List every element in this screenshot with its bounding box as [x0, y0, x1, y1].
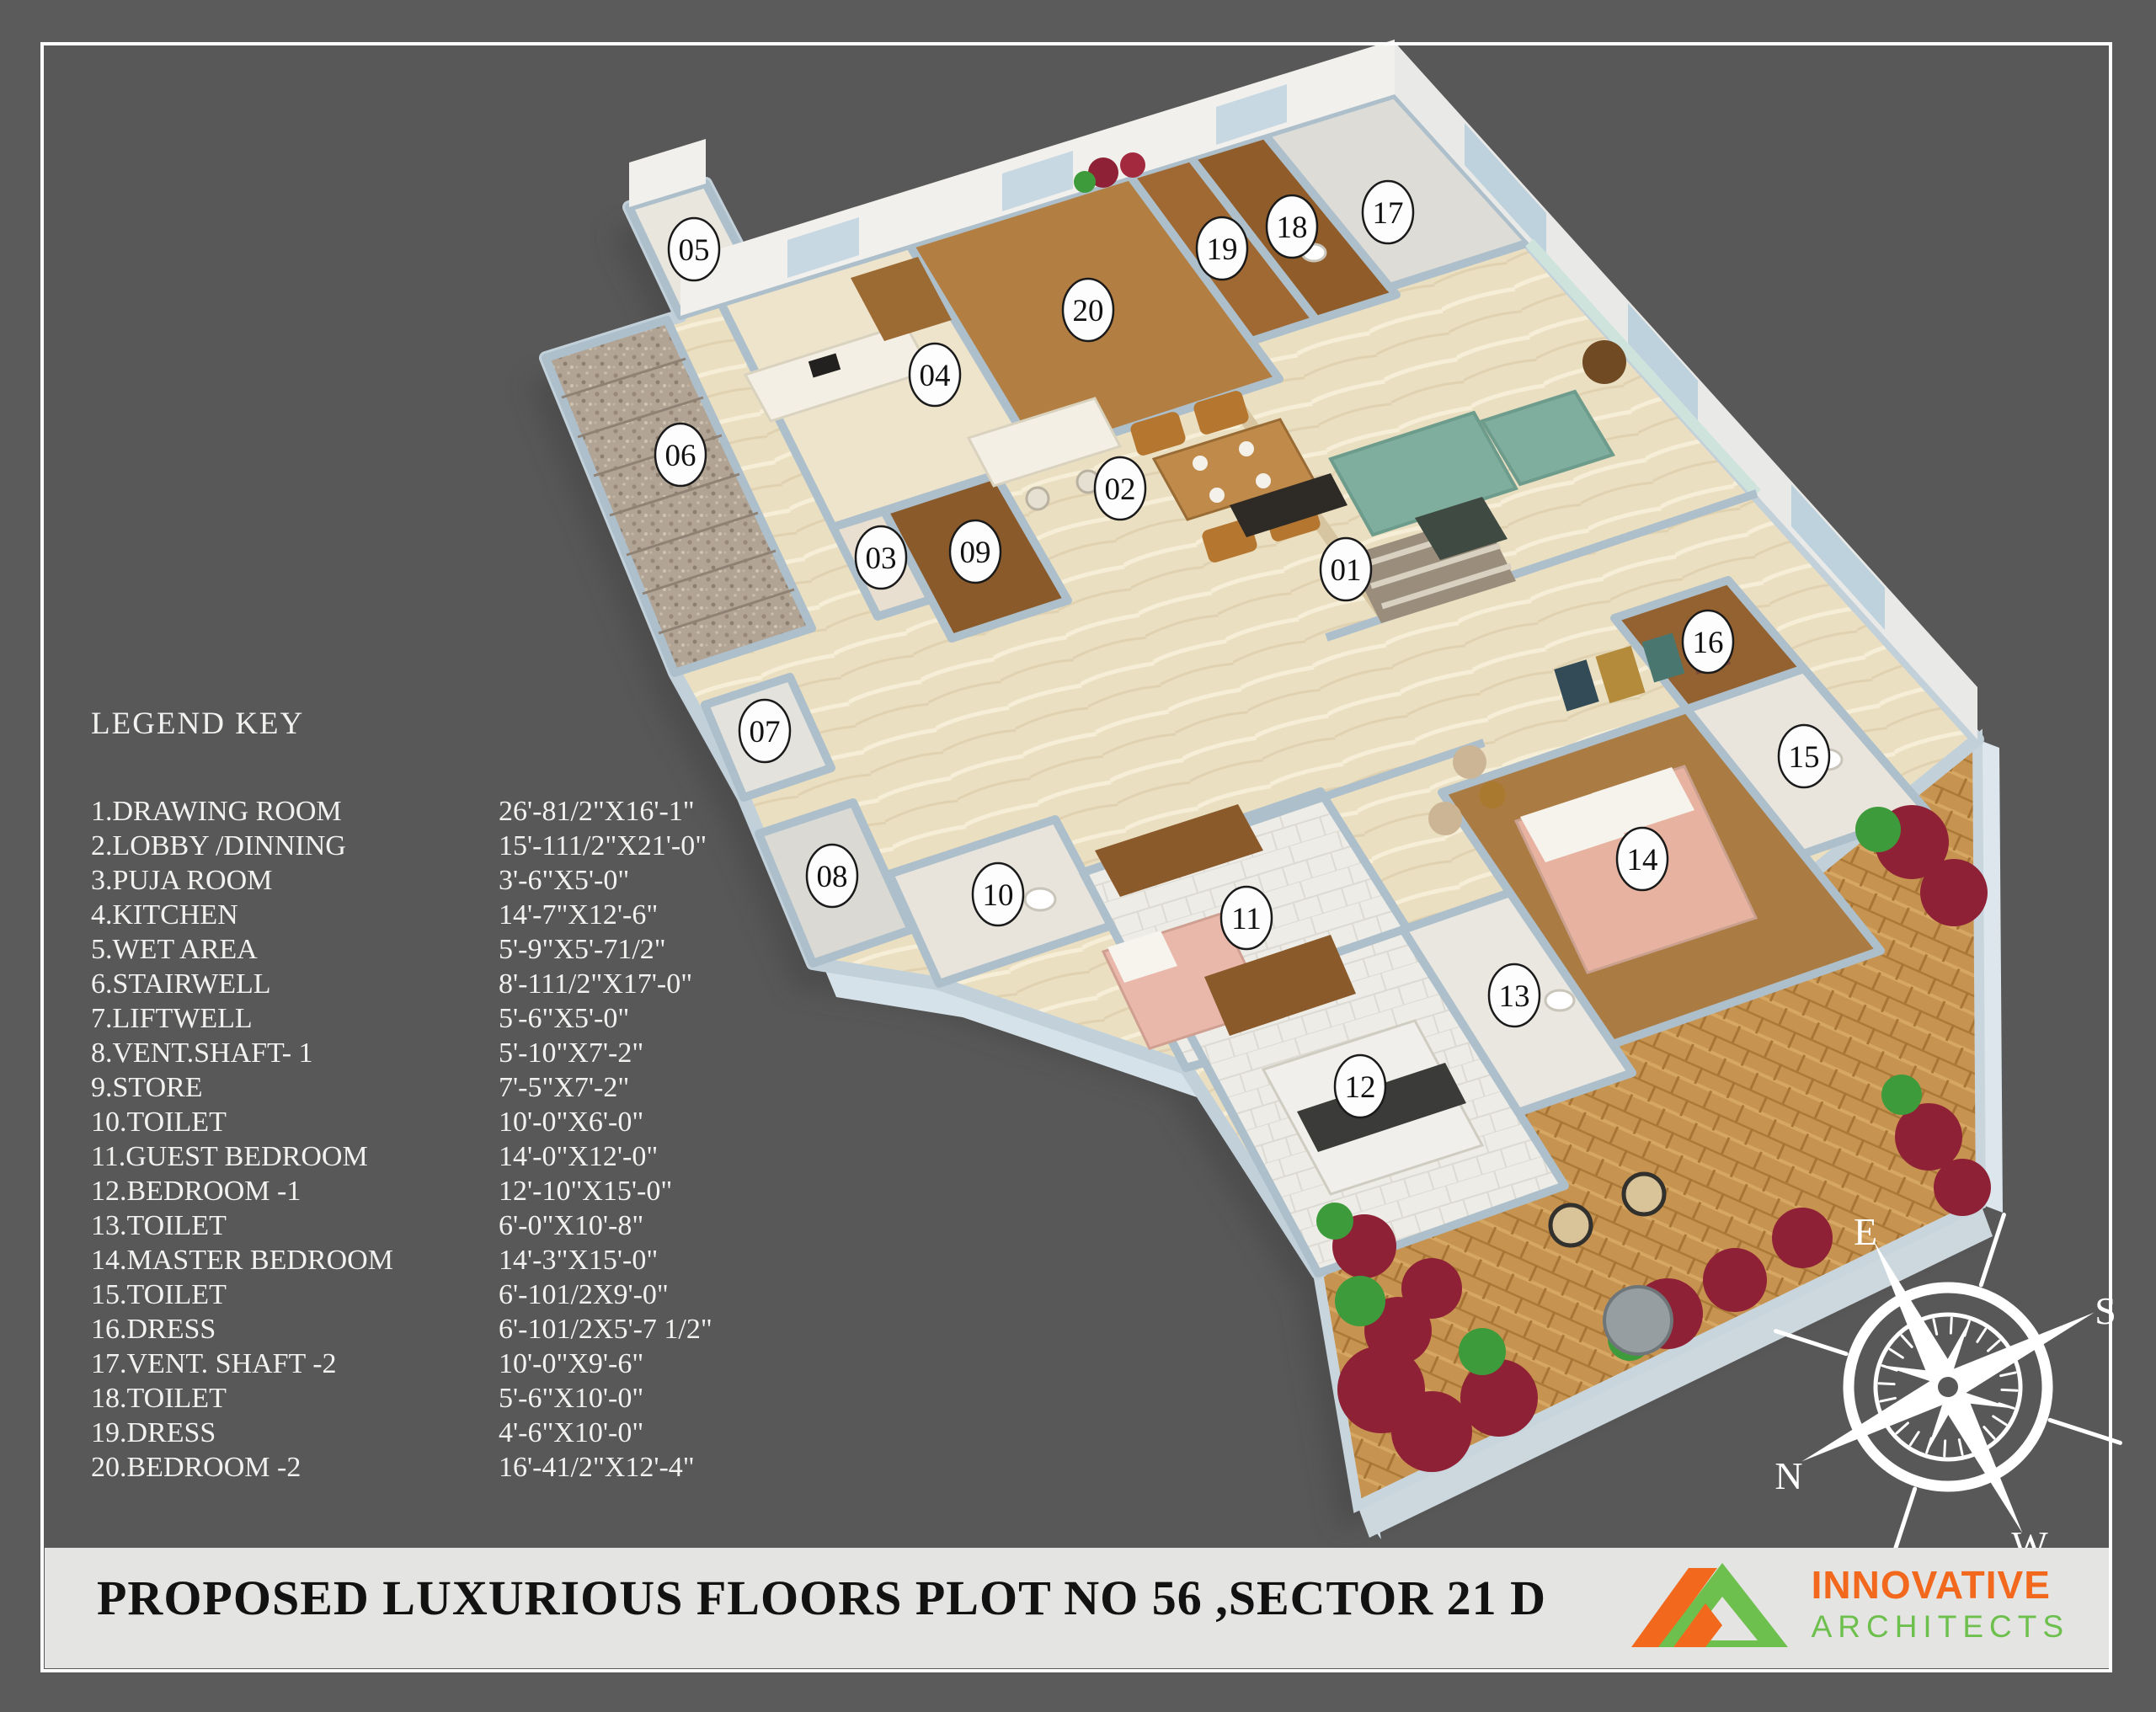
legend-item-dimension: 14'-3"X15'-0"	[499, 1243, 658, 1277]
svg-text:06: 06	[665, 439, 696, 473]
svg-text:09: 09	[960, 536, 991, 570]
legend-item-dimension: 14'-7"X12'-6"	[499, 898, 658, 932]
legend-item: 6.STAIRWELL8'-111/2"X17'-0"	[91, 967, 712, 1001]
room-marker-19: 19	[1197, 217, 1247, 280]
legend-item: 1.DRAWING ROOM26'-81/2"X16'-1"	[91, 794, 712, 829]
svg-text:02: 02	[1105, 472, 1136, 507]
room-marker-13: 13	[1489, 964, 1540, 1027]
legend-item-dimension: 6'-101/2X9'-0"	[499, 1277, 669, 1312]
room-marker-15: 15	[1779, 725, 1829, 787]
architect-logo: INNOVATIVE ARCHITECTS	[1623, 1553, 2069, 1654]
legend-item: 9.STORE7'-5"X7'-2"	[91, 1070, 712, 1105]
svg-text:18: 18	[1277, 211, 1308, 245]
legend-item-name: 8.VENT.SHAFT- 1	[91, 1036, 499, 1070]
legend-item-name: 2.LOBBY /DINNING	[91, 829, 499, 863]
svg-text:15: 15	[1789, 740, 1820, 775]
room-marker-03: 03	[856, 526, 906, 589]
title-bar: PROPOSED LUXURIOUS FLOORS PLOT NO 56 ,SE…	[45, 1548, 2111, 1668]
legend-item-name: 13.TOILET	[91, 1208, 499, 1243]
room-marker-01: 01	[1321, 538, 1371, 600]
svg-text:10: 10	[983, 878, 1014, 913]
svg-text:11: 11	[1231, 902, 1262, 936]
room-marker-11: 11	[1221, 887, 1272, 949]
legend-item-dimension: 5'-6"X10'-0"	[499, 1381, 643, 1416]
legend-item-dimension: 12'-10"X15'-0"	[499, 1174, 672, 1208]
room-marker-08: 08	[807, 845, 857, 907]
legend-item-name: 4.KITCHEN	[91, 898, 499, 932]
svg-text:01: 01	[1331, 553, 1362, 588]
legend-item-dimension: 5'-10"X7'-2"	[499, 1036, 643, 1070]
legend-item-name: 7.LIFTWELL	[91, 1001, 499, 1036]
floor-plan-poster: { "poster": { "background": "#5b5b5b", "…	[0, 0, 2156, 1712]
room-marker-05: 05	[669, 218, 719, 280]
room-marker-07: 07	[739, 700, 790, 762]
room-marker-12: 12	[1335, 1055, 1385, 1117]
legend-item: 12.BEDROOM -112'-10"X15'-0"	[91, 1174, 712, 1208]
legend-item-name: 9.STORE	[91, 1070, 499, 1105]
legend-item: 17.VENT. SHAFT -210'-0"X9'-6"	[91, 1347, 712, 1381]
room-marker-09: 09	[950, 520, 1001, 583]
svg-text:08: 08	[817, 860, 848, 894]
logo-mark-icon	[1623, 1553, 1800, 1654]
legend-item-name: 18.TOILET	[91, 1381, 499, 1416]
legend-item-dimension: 8'-111/2"X17'-0"	[499, 967, 692, 1001]
legend-items: 1.DRAWING ROOM26'-81/2"X16'-1"2.LOBBY /D…	[91, 794, 712, 1485]
legend-item-name: 20.BEDROOM -2	[91, 1450, 499, 1485]
legend-item-dimension: 5'-9"X5'-71/2"	[499, 932, 666, 967]
svg-text:19: 19	[1207, 232, 1238, 267]
legend-item-dimension: 4'-6"X10'-0"	[499, 1416, 643, 1450]
legend-item: 10.TOILET10'-0"X6'-0"	[91, 1105, 712, 1139]
legend-item-dimension: 6'-101/2X5'-7 1/2"	[499, 1312, 712, 1347]
legend-item: 2.LOBBY /DINNING15'-111/2"X21'-0"	[91, 829, 712, 863]
legend-item: 8.VENT.SHAFT- 15'-10"X7'-2"	[91, 1036, 712, 1070]
legend-item-name: 10.TOILET	[91, 1105, 499, 1139]
svg-text:03: 03	[866, 541, 897, 576]
legend-item-name: 6.STAIRWELL	[91, 967, 499, 1001]
legend-item-dimension: 7'-5"X7'-2"	[499, 1070, 629, 1105]
legend-item-dimension: 14'-0"X12'-0"	[499, 1139, 658, 1174]
room-marker-17: 17	[1363, 181, 1413, 243]
room-marker-02: 02	[1095, 457, 1145, 520]
compass-label-s: S	[2095, 1289, 2116, 1332]
svg-text:20: 20	[1073, 294, 1104, 328]
legend-item-name: 16.DRESS	[91, 1312, 499, 1347]
compass-label-e: E	[1854, 1210, 1877, 1253]
room-marker-10: 10	[973, 863, 1023, 925]
logo-line2: ARCHITECTS	[1812, 1609, 2069, 1645]
legend-item-name: 3.PUJA ROOM	[91, 863, 499, 898]
legend-item-dimension: 10'-0"X9'-6"	[499, 1347, 643, 1381]
legend-item: 19.DRESS4'-6"X10'-0"	[91, 1416, 712, 1450]
legend-item: 13.TOILET6'-0"X10'-8"	[91, 1208, 712, 1243]
page-title: PROPOSED LUXURIOUS FLOORS PLOT NO 56 ,SE…	[97, 1548, 1546, 1649]
legend-item: 7.LIFTWELL5'-6"X5'-0"	[91, 1001, 712, 1036]
legend-key: LEGEND KEY 1.DRAWING ROOM26'-81/2"X16'-1…	[91, 706, 712, 1485]
legend-item-dimension: 5'-6"X5'-0"	[499, 1001, 629, 1036]
legend-item-name: 17.VENT. SHAFT -2	[91, 1347, 499, 1381]
legend-item-name: 14.MASTER BEDROOM	[91, 1243, 499, 1277]
legend-item: 4.KITCHEN14'-7"X12'-6"	[91, 898, 712, 932]
room-marker-18: 18	[1267, 195, 1317, 258]
legend-item-name: 12.BEDROOM -1	[91, 1174, 499, 1208]
legend-item-dimension: 10'-0"X6'-0"	[499, 1105, 643, 1139]
svg-text:14: 14	[1627, 843, 1658, 877]
legend-item: 5.WET AREA5'-9"X5'-71/2"	[91, 932, 712, 967]
legend-item-name: 11.GUEST BEDROOM	[91, 1139, 499, 1174]
room-marker-14: 14	[1617, 828, 1668, 890]
legend-item: 20.BEDROOM -216'-41/2"X12'-4"	[91, 1450, 712, 1485]
room-marker-20: 20	[1063, 279, 1113, 341]
legend-item: 3.PUJA ROOM3'-6"X5'-0"	[91, 863, 712, 898]
svg-text:05: 05	[679, 233, 710, 268]
legend-item: 11.GUEST BEDROOM14'-0"X12'-0"	[91, 1139, 712, 1174]
legend-item: 18.TOILET5'-6"X10'-0"	[91, 1381, 712, 1416]
room-marker-16: 16	[1683, 611, 1733, 673]
legend-item-name: 19.DRESS	[91, 1416, 499, 1450]
svg-text:04: 04	[920, 359, 951, 393]
svg-text:07: 07	[750, 715, 781, 749]
legend-item: 14.MASTER BEDROOM14'-3"X15'-0"	[91, 1243, 712, 1277]
legend-item-dimension: 26'-81/2"X16'-1"	[499, 794, 695, 829]
legend-item-name: 15.TOILET	[91, 1277, 499, 1312]
legend-title: LEGEND KEY	[91, 706, 712, 742]
svg-text:16: 16	[1693, 626, 1724, 660]
legend-item: 15.TOILET6'-101/2X9'-0"	[91, 1277, 712, 1312]
legend-item-name: 5.WET AREA	[91, 932, 499, 967]
legend-item-dimension: 6'-0"X10'-8"	[499, 1208, 643, 1243]
svg-text:12: 12	[1345, 1070, 1376, 1105]
legend-item-name: 1.DRAWING ROOM	[91, 794, 499, 829]
legend-item-dimension: 16'-41/2"X12'-4"	[499, 1450, 695, 1485]
compass-label-n: N	[1774, 1454, 1802, 1497]
room-marker-04: 04	[910, 344, 960, 406]
logo-line1: INNOVATIVE	[1812, 1562, 2069, 1608]
legend-item: 16.DRESS6'-101/2X5'-7 1/2"	[91, 1312, 712, 1347]
svg-text:13: 13	[1499, 979, 1530, 1014]
svg-text:17: 17	[1373, 196, 1404, 231]
legend-item-dimension: 3'-6"X5'-0"	[499, 863, 629, 898]
legend-item-dimension: 15'-111/2"X21'-0"	[499, 829, 707, 863]
room-marker-06: 06	[655, 424, 706, 486]
